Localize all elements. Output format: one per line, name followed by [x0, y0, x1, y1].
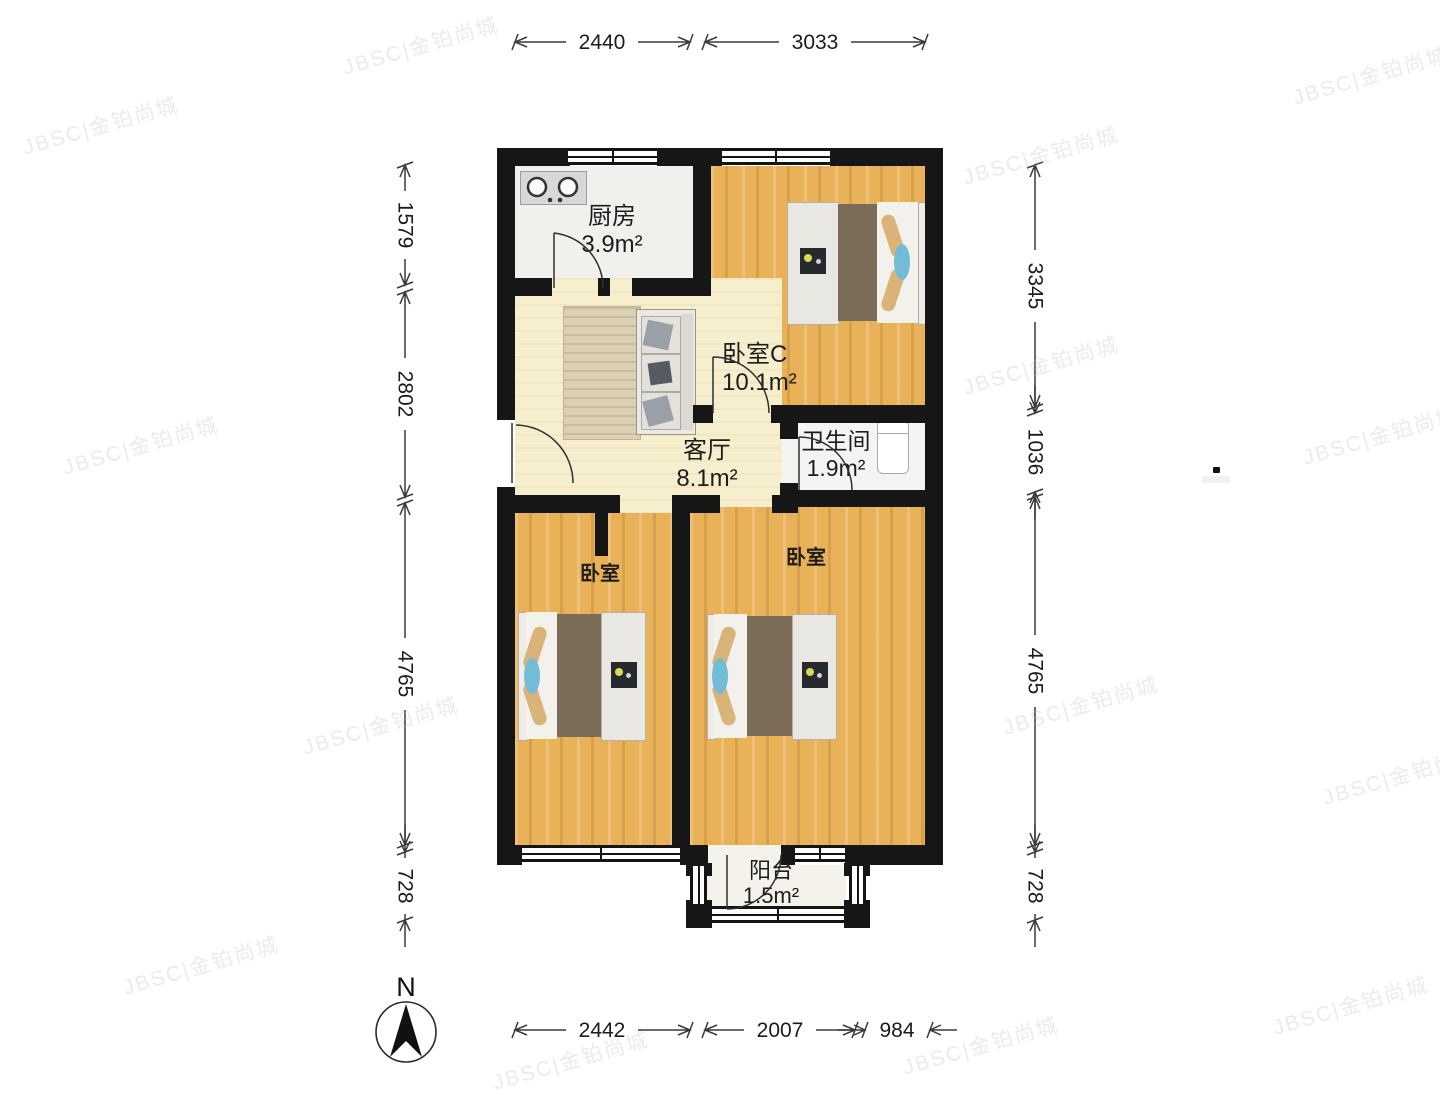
dim-right-1036: 1036	[1024, 386, 1047, 519]
wall-bottom-4	[845, 845, 943, 865]
bed-round-pillow	[712, 658, 728, 694]
bedroom-c-label: 卧室C 10.1m²	[722, 341, 797, 397]
stray-mark	[1213, 467, 1220, 473]
dim-right-4765: 4765	[1024, 494, 1047, 848]
wall-top-3	[830, 148, 943, 166]
window-bedroom-right-bottom	[795, 845, 845, 862]
wall-stub-bedroom-left	[595, 513, 608, 556]
kitchen-name: 厨房	[588, 203, 636, 230]
wall-left-upper	[497, 166, 515, 420]
dim-label: 728	[1024, 868, 1047, 903]
dim-label: 2802	[394, 371, 417, 418]
balcony-label: 阳台 1.5m²	[743, 858, 799, 908]
dim-label: 2440	[579, 31, 626, 54]
watermark-text: JBSC|金铂尚城	[339, 8, 502, 81]
bed-blanket	[747, 616, 792, 736]
bed-quilt-dot	[817, 673, 822, 678]
wall-between-bedrooms	[672, 513, 690, 845]
watermark-text: JBSC|金铂尚城	[299, 688, 462, 761]
living-room-name: 客厅	[683, 437, 731, 464]
window-bedroom-c-top	[722, 148, 830, 165]
stove-icon	[520, 171, 587, 205]
watermark-text: JBSC|金铂尚城	[959, 328, 1122, 401]
bedroom-c-name: 卧室C	[722, 341, 787, 368]
wall-top-2	[657, 148, 722, 166]
dim-left-728: 728	[394, 825, 417, 947]
dim-label: 3033	[792, 31, 839, 54]
balcony-name: 阳台	[749, 858, 793, 883]
wall-bottom-1	[497, 845, 522, 865]
bedroom-right-label: 卧室	[786, 544, 826, 572]
watermark-text: JBSC|金铂尚城	[59, 408, 222, 481]
bed-blanket	[838, 204, 877, 321]
bed-quilt-square	[802, 662, 828, 688]
kitchen-area: 3.9m²	[581, 231, 642, 258]
double-bed-bedroom-left	[518, 612, 648, 739]
watermark-text: JBSC|金铂尚城	[1319, 738, 1440, 811]
watermark-text: JBSC|金铂尚城	[899, 1008, 1062, 1081]
kitchen-label: 厨房 3.9m²	[581, 203, 642, 259]
bed-quilt-dot	[816, 259, 821, 264]
watermark-text: JBSC|金铂尚城	[119, 928, 282, 1001]
bathroom-area: 1.9m²	[807, 455, 866, 481]
balcony-post-bottom-left	[686, 900, 712, 928]
dim-bottom-984: 984	[838, 1019, 957, 1042]
wall-left-lower	[497, 487, 515, 845]
dim-bottom-2007: 2007	[702, 1019, 858, 1042]
toilet-tank-line	[878, 433, 908, 434]
dim-right-3345: 3345	[1024, 162, 1047, 410]
bed-round-pillow	[894, 244, 910, 280]
dim-label: 3345	[1024, 263, 1047, 310]
bed-quilt-square	[611, 662, 637, 688]
wall-kitchen-right	[693, 166, 711, 296]
living-room-area: 8.1m²	[676, 465, 737, 492]
watermark-text: JBSC|金铂尚城	[1289, 38, 1440, 111]
dim-left-1579: 1579	[394, 162, 417, 288]
rug	[563, 306, 641, 440]
dim-label: 2442	[579, 1019, 626, 1042]
wall-kitchen-bottom-1	[515, 278, 552, 296]
watermark-text: JBSC|金铂尚城	[1269, 968, 1432, 1041]
sofa	[636, 309, 696, 435]
dim-label: 2007	[757, 1019, 804, 1042]
balcony-post-bottom-right	[844, 900, 870, 928]
dim-label: 4765	[1024, 648, 1047, 695]
bedroom-left-name: 卧室	[580, 563, 620, 585]
wall-kitchen-bottom-2	[632, 278, 693, 296]
dim-top-3033: 3033	[702, 31, 928, 54]
stray-smudge	[1202, 476, 1230, 483]
bed-round-pillow	[524, 658, 540, 694]
dim-left-4765: 4765	[394, 500, 417, 848]
wall-living-bottom-3	[772, 495, 798, 513]
dim-left-2802: 2802	[394, 289, 417, 500]
floor-plan: 厨房 3.9m² 卧室C 10.1m² 客厅 8.1m² 卫生间 1.9m² 卧…	[0, 0, 1440, 1080]
double-bed-bedroom-c	[780, 202, 925, 323]
window-balcony-left	[690, 866, 707, 904]
bathroom-label: 卫生间 1.9m²	[802, 428, 871, 482]
wall-bathroom-left-1	[780, 415, 798, 439]
window-balcony-bottom	[712, 906, 844, 923]
watermark-text: JBSC|金铂尚城	[489, 1023, 652, 1096]
bedroom-right-name: 卧室	[786, 547, 826, 569]
bed-quilt-dot	[806, 668, 814, 676]
wall-bathroom-bottom	[798, 490, 925, 507]
dim-label: 1036	[1024, 429, 1047, 476]
wall-right	[925, 166, 943, 845]
sofa-backrest	[681, 314, 693, 430]
bed-quilt-dot	[626, 673, 631, 678]
living-room-label: 客厅 8.1m²	[676, 437, 737, 493]
sofa-pillow	[648, 361, 673, 386]
bed-blanket	[557, 614, 601, 737]
double-bed-bedroom-right	[707, 614, 840, 738]
wall-living-bottom-1	[497, 495, 620, 513]
watermark-text: JBSC|金铂尚城	[1299, 398, 1440, 471]
window-bedroom-left-bottom	[522, 845, 680, 862]
bed-quilt-square	[800, 248, 826, 274]
wall-living-bottom-2	[672, 495, 720, 513]
bed-quilt-dot	[615, 668, 623, 676]
watermark-text: JBSC|金铂尚城	[19, 88, 182, 161]
dim-label: 728	[394, 868, 417, 903]
dim-top-2440: 2440	[512, 31, 693, 54]
wall-bedroom-c-bottom-1	[693, 405, 713, 423]
bed-quilt-dot	[804, 254, 812, 262]
dim-label: 4765	[394, 651, 417, 698]
wall-bottom-2	[680, 845, 708, 865]
window-kitchen-top	[568, 148, 657, 165]
dim-label: 984	[879, 1019, 914, 1042]
north-arrow-icon: N	[376, 972, 436, 1062]
wall-kitchen-door-jamb	[598, 278, 610, 296]
bedroom-left-label: 卧室	[580, 560, 620, 588]
sofa-pillow	[643, 320, 674, 351]
watermark-text: JBSC|金铂尚城	[959, 118, 1122, 191]
watermark-text: JBSC|金铂尚城	[999, 668, 1162, 741]
dim-right-728: 728	[1024, 825, 1047, 947]
dim-label: 1579	[394, 202, 417, 249]
wall-top-1	[497, 148, 570, 166]
bathroom-door-floor	[782, 439, 798, 485]
balcony-area: 1.5m²	[743, 883, 799, 908]
dim-bottom-2442: 2442	[512, 1019, 693, 1042]
north-label: N	[396, 972, 416, 1002]
toilet-icon	[877, 420, 909, 474]
bedroom-c-area: 10.1m²	[722, 369, 797, 396]
window-balcony-right	[849, 866, 866, 904]
bathroom-name: 卫生间	[802, 428, 871, 454]
